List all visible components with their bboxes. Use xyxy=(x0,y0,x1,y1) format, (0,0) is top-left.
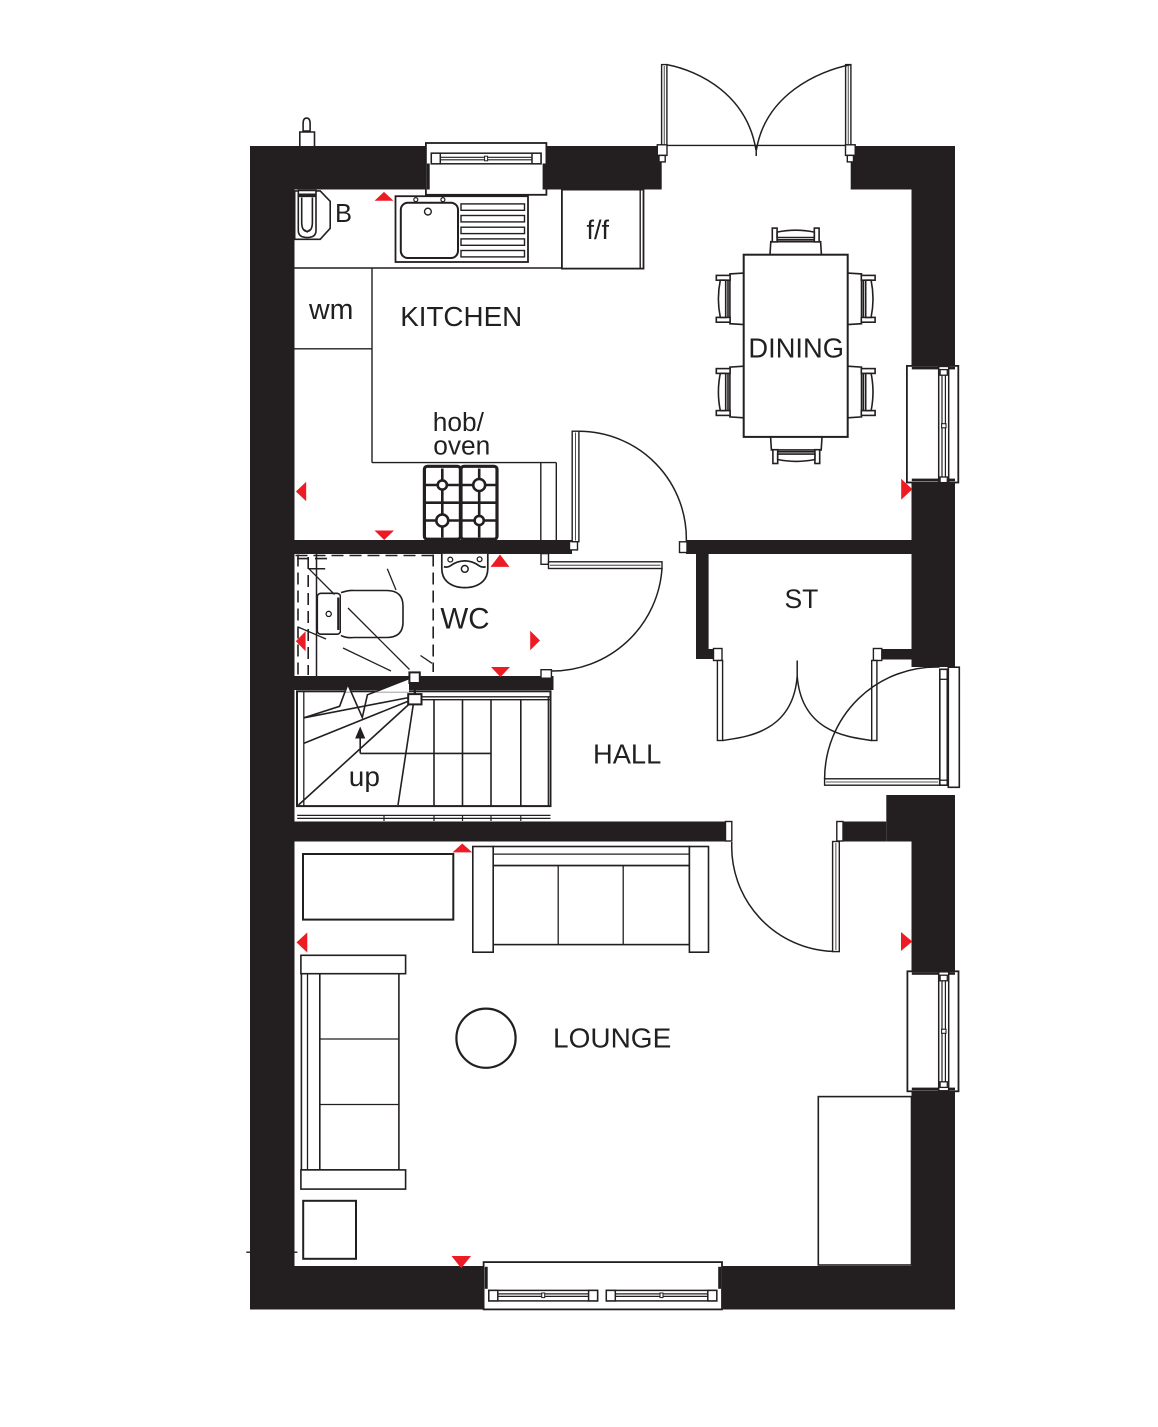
svg-text:up: up xyxy=(349,761,380,792)
svg-text:B: B xyxy=(335,200,352,228)
svg-text:KITCHEN: KITCHEN xyxy=(400,301,522,332)
svg-text:HALL: HALL xyxy=(593,739,661,770)
svg-text:oven: oven xyxy=(433,430,490,460)
svg-text:DINING: DINING xyxy=(748,332,844,363)
svg-text:LOUNGE: LOUNGE xyxy=(553,1023,671,1054)
svg-text:wm: wm xyxy=(308,294,353,326)
svg-text:ST: ST xyxy=(785,584,819,614)
svg-text:f/f: f/f xyxy=(587,215,610,245)
svg-text:WC: WC xyxy=(440,602,489,635)
